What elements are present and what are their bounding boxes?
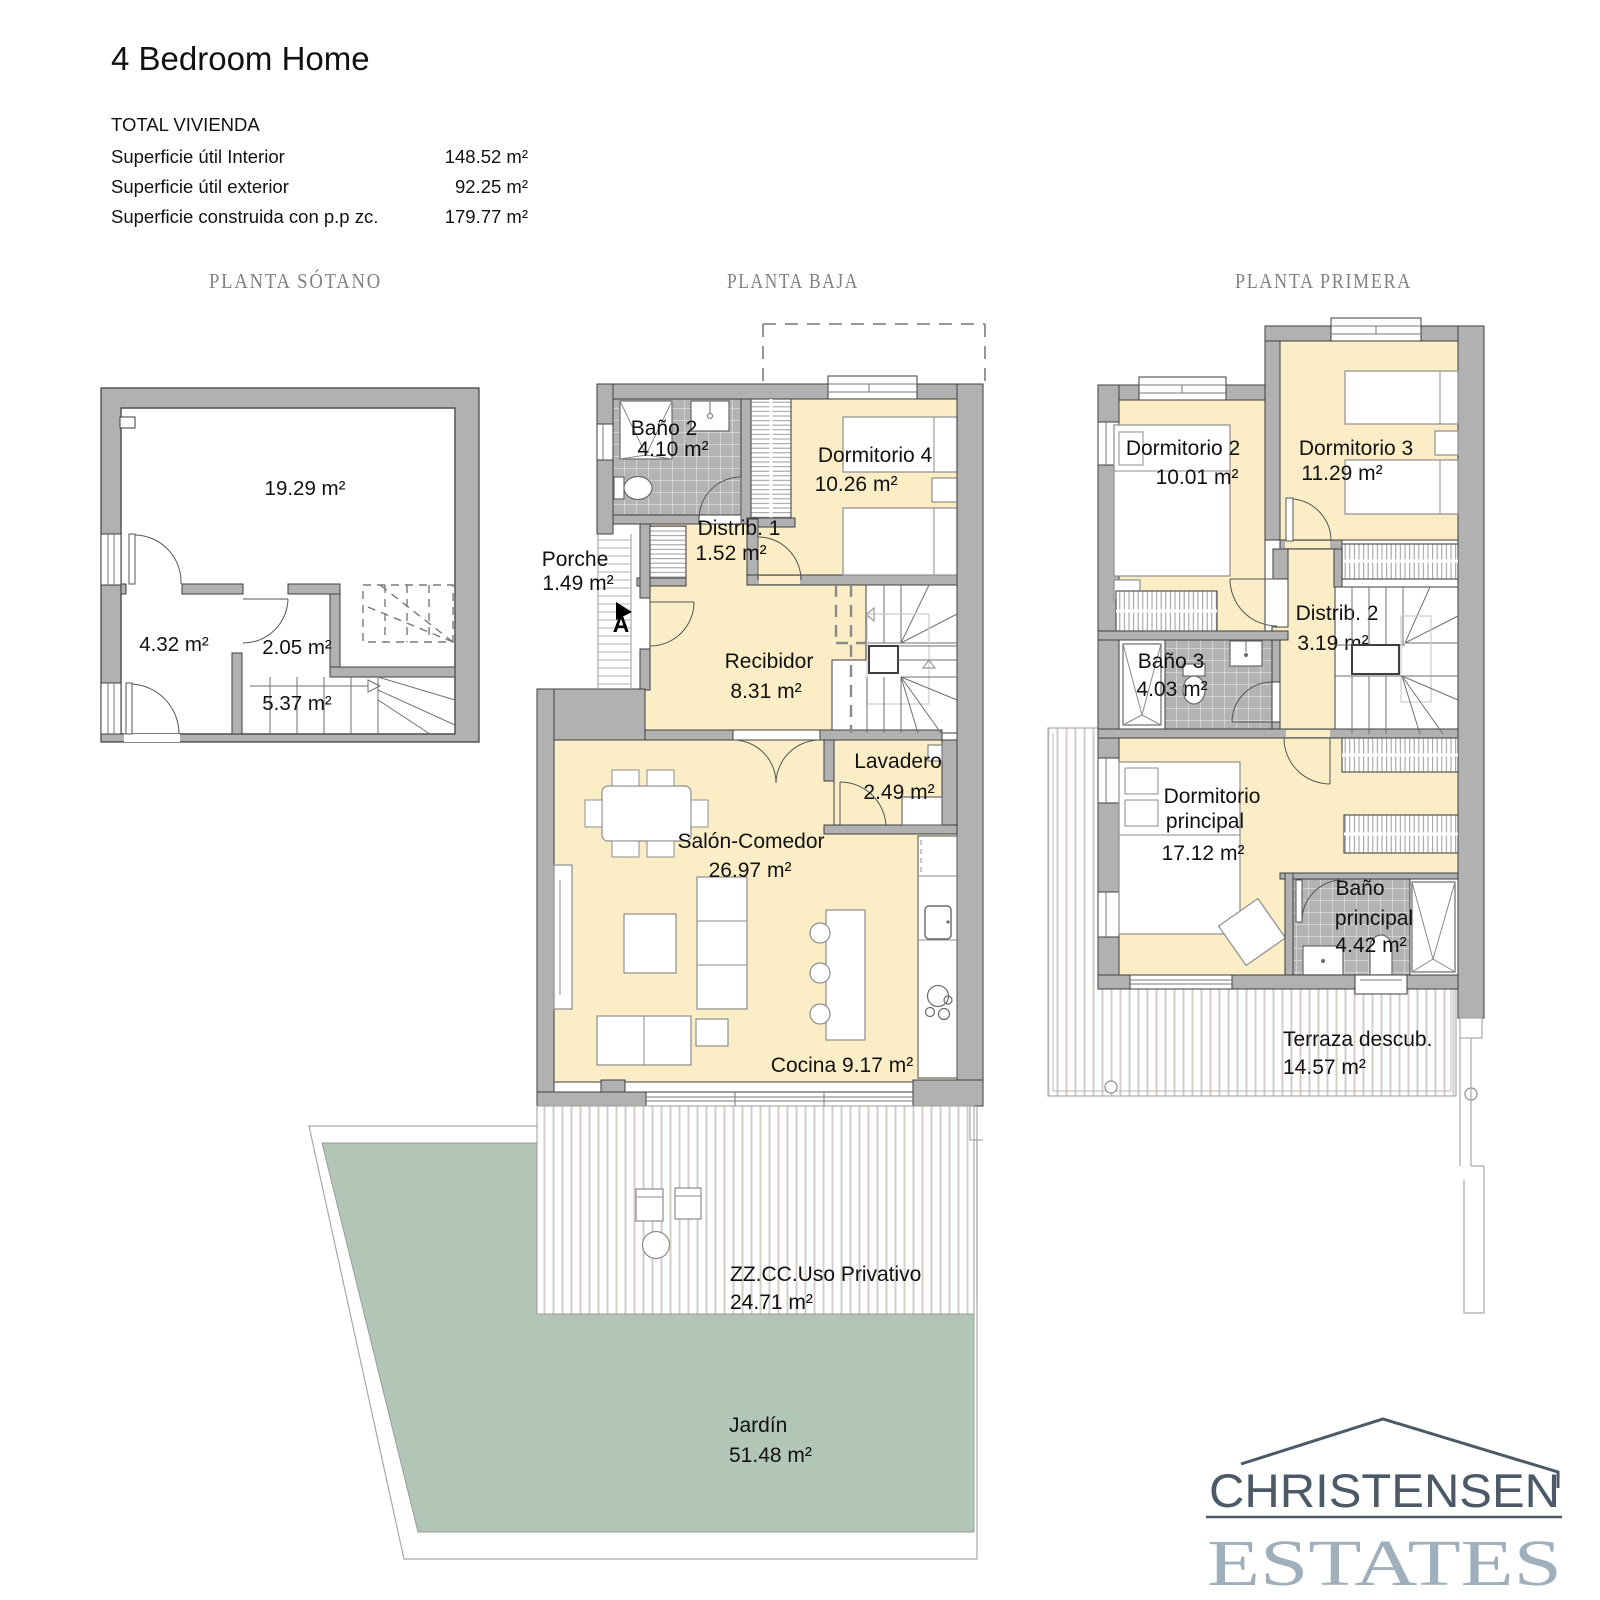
svg-text:4 Bedroom Home: 4 Bedroom Home [111,40,370,77]
svg-text:148.52 m²: 148.52 m² [445,146,528,167]
svg-text:Cocina 9.17 m²: Cocina 9.17 m² [771,1054,913,1077]
svg-text:11.29 m²: 11.29 m² [1301,462,1382,485]
svg-text:1.49 m²: 1.49 m² [542,572,613,595]
svg-text:ESTATES: ESTATES [1207,1527,1562,1600]
svg-text:CHRISTENSEN: CHRISTENSEN [1209,1464,1560,1517]
svg-text:19.29 m²: 19.29 m² [265,477,346,500]
svg-text:Superficie construida con p.p: Superficie construida con p.p zc. [111,206,378,227]
svg-text:Terraza descub.: Terraza descub. [1283,1028,1432,1051]
svg-text:4.32 m²: 4.32 m² [139,633,209,656]
svg-text:1.52 m²: 1.52 m² [695,542,766,565]
svg-text:Recibidor: Recibidor [725,650,814,673]
svg-text:Dormitorio 3: Dormitorio 3 [1299,437,1413,460]
svg-text:PLANTA PRIMERA: PLANTA PRIMERA [1235,269,1412,293]
svg-text:Distrib. 2: Distrib. 2 [1296,602,1379,625]
svg-text:Baño 2: Baño 2 [631,417,698,440]
svg-text:2.49 m²: 2.49 m² [863,781,934,804]
svg-text:4.42 m²: 4.42 m² [1335,934,1406,957]
svg-text:Dormitorio: Dormitorio [1164,785,1261,808]
svg-text:Dormitorio 4: Dormitorio 4 [818,444,933,467]
svg-text:2.05 m²: 2.05 m² [262,636,332,659]
svg-text:4.10 m²: 4.10 m² [637,438,708,461]
svg-text:92.25 m²: 92.25 m² [455,176,528,197]
svg-text:PLANTA SÓTANO: PLANTA SÓTANO [209,269,382,293]
svg-text:principal: principal [1166,810,1244,833]
svg-text:Dormitorio 2: Dormitorio 2 [1126,437,1240,460]
svg-text:17.12 m²: 17.12 m² [1162,842,1245,865]
svg-text:Porche: Porche [542,548,609,571]
svg-text:24.71 m²: 24.71 m² [730,1291,813,1314]
svg-text:10.01 m²: 10.01 m² [1156,466,1239,489]
svg-text:10.26 m²: 10.26 m² [815,473,898,496]
svg-text:179.77 m²: 179.77 m² [445,206,528,227]
svg-text:51.48 m²: 51.48 m² [729,1444,812,1467]
svg-text:Lavadero: Lavadero [854,750,942,773]
svg-text:Superficie útil Interior: Superficie útil Interior [111,146,285,167]
svg-text:26.97 m²: 26.97 m² [709,859,792,882]
svg-text:Baño: Baño [1335,877,1384,900]
svg-text:ZZ.CC.Uso Privativo: ZZ.CC.Uso Privativo [730,1263,921,1286]
svg-text:TOTAL VIVIENDA: TOTAL VIVIENDA [111,114,260,135]
svg-text:PLANTA BAJA: PLANTA BAJA [727,269,859,293]
svg-text:principal: principal [1335,907,1413,930]
svg-text:Jardín: Jardín [729,1414,787,1437]
svg-text:14.57 m²: 14.57 m² [1283,1056,1366,1079]
svg-text:5.37 m²: 5.37 m² [262,692,332,715]
svg-text:Baño 3: Baño 3 [1138,650,1205,673]
svg-text:4.03 m²: 4.03 m² [1136,678,1207,701]
svg-text:Salón-Comedor: Salón-Comedor [677,830,824,853]
svg-text:Distrib. 1: Distrib. 1 [698,517,781,540]
svg-text:A: A [613,611,630,637]
svg-text:Superficie útil exterior: Superficie útil exterior [111,176,289,197]
svg-text:8.31 m²: 8.31 m² [730,680,801,703]
